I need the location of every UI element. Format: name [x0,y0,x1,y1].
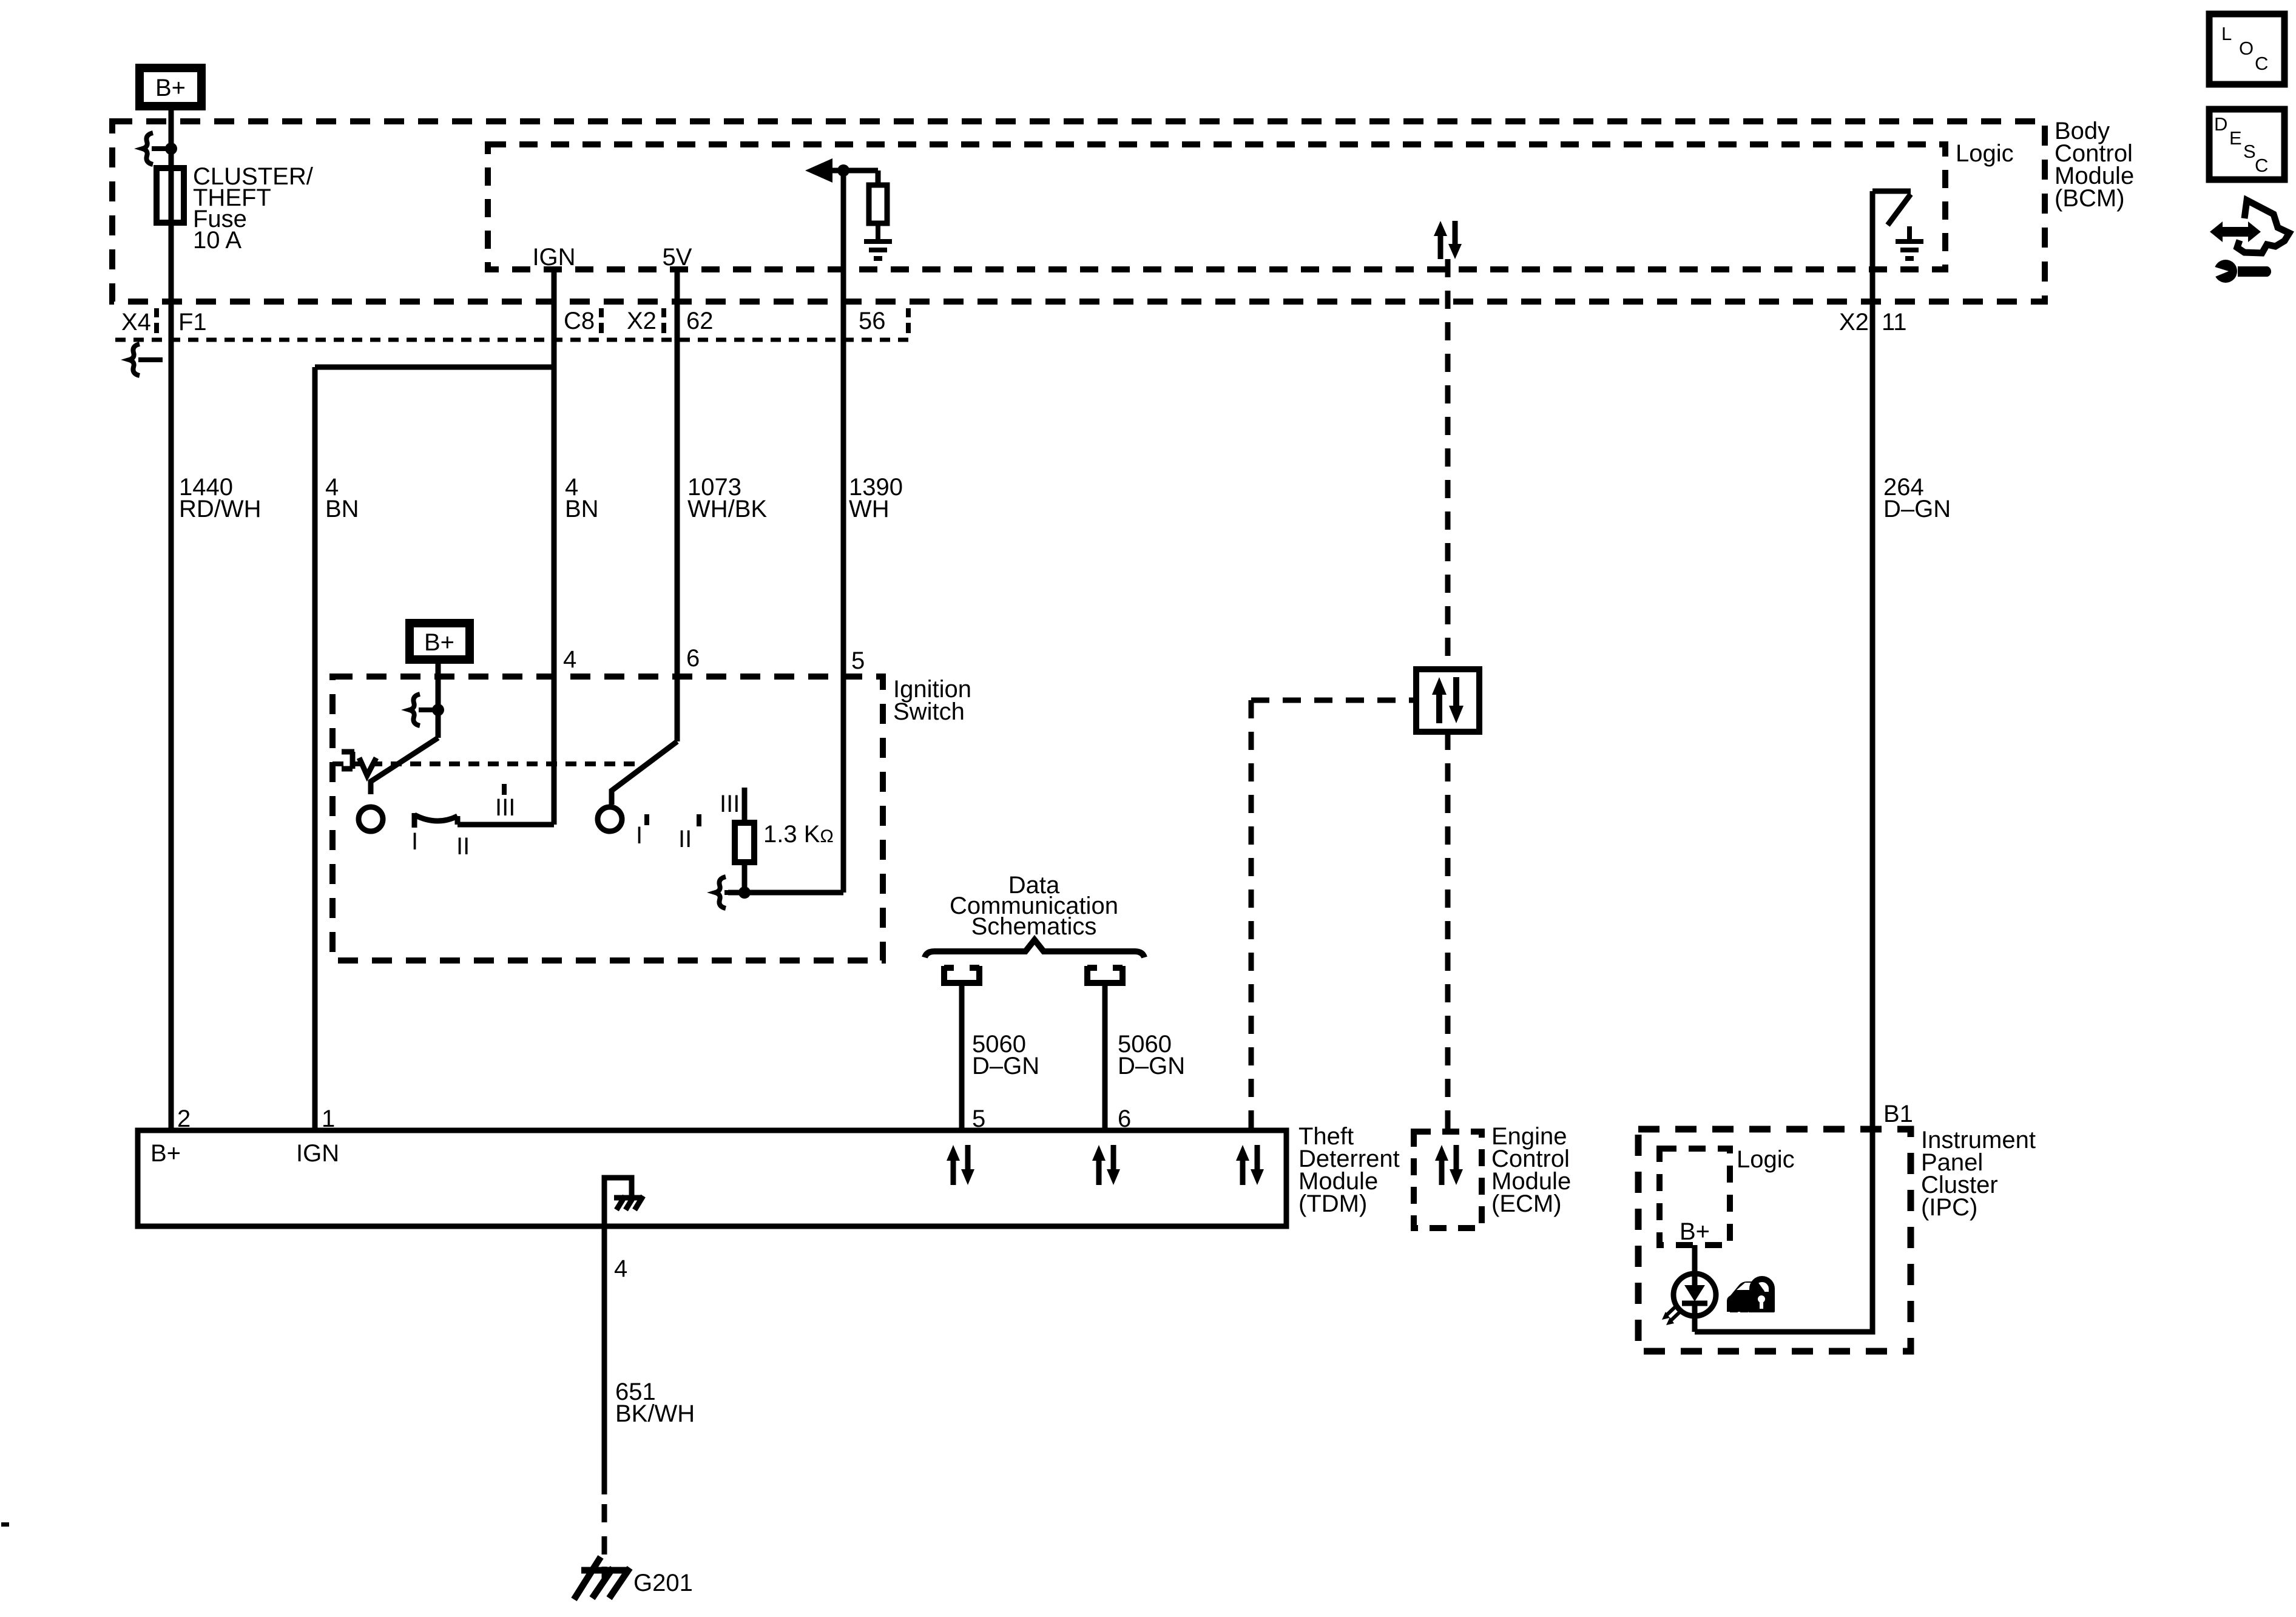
svg-text:E: E [2229,127,2242,149]
svg-text:G201: G201 [633,1570,693,1596]
svg-text:WH: WH [849,496,890,522]
svg-text:10 A: 10 A [193,227,241,254]
svg-text:2: 2 [177,1106,191,1132]
svg-text:III: III [495,794,515,821]
svg-text:L: L [2221,23,2232,44]
svg-text:WH/BK: WH/BK [687,496,767,522]
svg-text:D: D [2214,113,2227,135]
svg-text:RD/WH: RD/WH [179,496,262,522]
svg-text:BK/WH: BK/WH [615,1400,695,1427]
svg-text:(TDM): (TDM) [1298,1190,1367,1217]
svg-text:4: 4 [614,1255,627,1282]
svg-text:4: 4 [563,646,576,673]
svg-text:S: S [2243,141,2256,162]
svg-text:B+: B+ [155,75,186,101]
svg-text:C8: C8 [564,308,595,334]
svg-text:BN: BN [325,496,359,522]
svg-text:X4: X4 [121,309,151,336]
svg-text:D–GN: D–GN [972,1053,1039,1079]
svg-text:5: 5 [972,1106,985,1132]
svg-text:1.3 KΩ: 1.3 KΩ [763,821,834,848]
svg-text:D–GN: D–GN [1883,496,1951,522]
svg-text:O: O [2239,38,2254,59]
svg-text:Logic: Logic [1956,140,2014,167]
svg-text:(ECM): (ECM) [1491,1190,1562,1217]
svg-text:Logic: Logic [1737,1146,1795,1173]
svg-text:F1: F1 [178,309,207,336]
svg-text:C: C [2255,155,2268,176]
svg-text:11: 11 [1882,309,1907,336]
svg-text:C: C [2255,53,2268,74]
svg-text:IGN: IGN [532,244,575,271]
svg-text:5V: 5V [663,244,692,271]
svg-text:X2: X2 [1839,309,1869,336]
svg-text:B+: B+ [1680,1218,1710,1245]
svg-text:6: 6 [1118,1106,1131,1132]
svg-text:II: II [678,826,692,852]
svg-text:B+: B+ [150,1140,181,1167]
svg-text:(BCM): (BCM) [2055,185,2125,212]
svg-text:II: II [456,833,470,860]
svg-text:Switch: Switch [893,698,965,725]
svg-text:56: 56 [859,308,886,334]
svg-text:(IPC): (IPC) [1921,1194,1977,1221]
svg-text:B1: B1 [1883,1101,1913,1127]
svg-text:I: I [411,828,418,855]
svg-text:X2: X2 [627,308,657,334]
svg-text:I: I [636,822,643,849]
svg-text:D–GN: D–GN [1118,1053,1185,1079]
svg-text:B+: B+ [424,629,454,656]
svg-text:III: III [720,791,740,817]
svg-text:IGN: IGN [296,1140,339,1167]
svg-text:62: 62 [686,308,714,334]
svg-text:1: 1 [322,1106,335,1132]
svg-text:5: 5 [851,647,865,674]
svg-text:6: 6 [686,645,700,672]
svg-text:BN: BN [565,496,599,522]
